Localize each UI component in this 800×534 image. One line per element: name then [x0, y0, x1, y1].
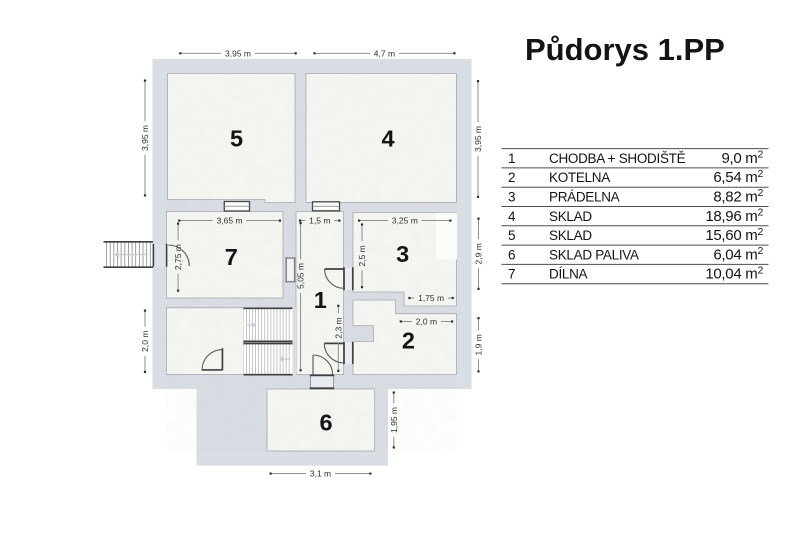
- svg-text:10,04 m2: 10,04 m2: [705, 264, 763, 282]
- svg-text:6,04 m2: 6,04 m2: [713, 245, 763, 263]
- svg-text:DÍLNA: DÍLNA: [549, 267, 588, 282]
- svg-text:2,5 m: 2,5 m: [357, 245, 367, 266]
- svg-text:1: 1: [508, 151, 515, 166]
- svg-text:5,05 m: 5,05 m: [296, 263, 306, 289]
- svg-text:KOTELNA: KOTELNA: [549, 170, 610, 185]
- svg-text:7: 7: [225, 244, 238, 270]
- svg-text:4,7 m: 4,7 m: [374, 48, 395, 58]
- svg-text:2,75 m: 2,75 m: [173, 244, 183, 270]
- svg-text:6: 6: [319, 410, 332, 436]
- svg-text:8,82 m2: 8,82 m2: [713, 187, 763, 205]
- svg-text:3,95 m: 3,95 m: [473, 126, 483, 152]
- svg-text:SKLAD PALIVA: SKLAD PALIVA: [549, 247, 639, 262]
- svg-text:PRÁDELNA: PRÁDELNA: [549, 189, 620, 204]
- svg-text:3,95 m: 3,95 m: [140, 125, 150, 151]
- svg-text:5: 5: [230, 126, 243, 152]
- svg-text:1,95 m: 1,95 m: [389, 407, 399, 433]
- svg-text:3: 3: [396, 241, 409, 267]
- svg-text:SKLAD: SKLAD: [549, 209, 592, 224]
- svg-text:5: 5: [508, 228, 515, 243]
- svg-text:6: 6: [508, 247, 515, 262]
- svg-text:Půdorys 1.PP: Půdorys 1.PP: [525, 32, 725, 67]
- svg-text:4: 4: [508, 209, 516, 224]
- svg-text:2,3 m: 2,3 m: [333, 317, 343, 338]
- svg-text:3,1 m: 3,1 m: [310, 469, 331, 479]
- svg-text:2,0 m: 2,0 m: [416, 317, 437, 327]
- svg-text:2: 2: [508, 170, 515, 185]
- svg-text:6,54 m2: 6,54 m2: [713, 168, 763, 186]
- svg-text:1: 1: [314, 287, 327, 313]
- svg-text:2,0 m: 2,0 m: [140, 331, 150, 352]
- svg-text:15,60 m2: 15,60 m2: [705, 226, 763, 244]
- svg-text:2,9 m: 2,9 m: [474, 243, 484, 264]
- svg-text:3: 3: [508, 189, 515, 204]
- svg-text:3,95 m: 3,95 m: [225, 48, 251, 58]
- svg-text:18,96 m2: 18,96 m2: [705, 207, 763, 225]
- svg-text:9,0 m2: 9,0 m2: [721, 149, 763, 167]
- svg-text:1,75 m: 1,75 m: [418, 293, 444, 303]
- svg-text:4: 4: [381, 126, 394, 152]
- svg-text:3,65 m: 3,65 m: [217, 216, 243, 226]
- svg-text:1,9 m: 1,9 m: [474, 334, 484, 355]
- svg-text:3,25 m: 3,25 m: [392, 216, 418, 226]
- svg-text:CHODBA + SHODIŠTĚ: CHODBA + SHODIŠTĚ: [549, 151, 686, 166]
- svg-text:SKLAD: SKLAD: [549, 228, 592, 243]
- svg-text:7: 7: [508, 267, 515, 282]
- svg-text:2: 2: [402, 328, 415, 354]
- svg-text:1,5 m: 1,5 m: [309, 216, 330, 226]
